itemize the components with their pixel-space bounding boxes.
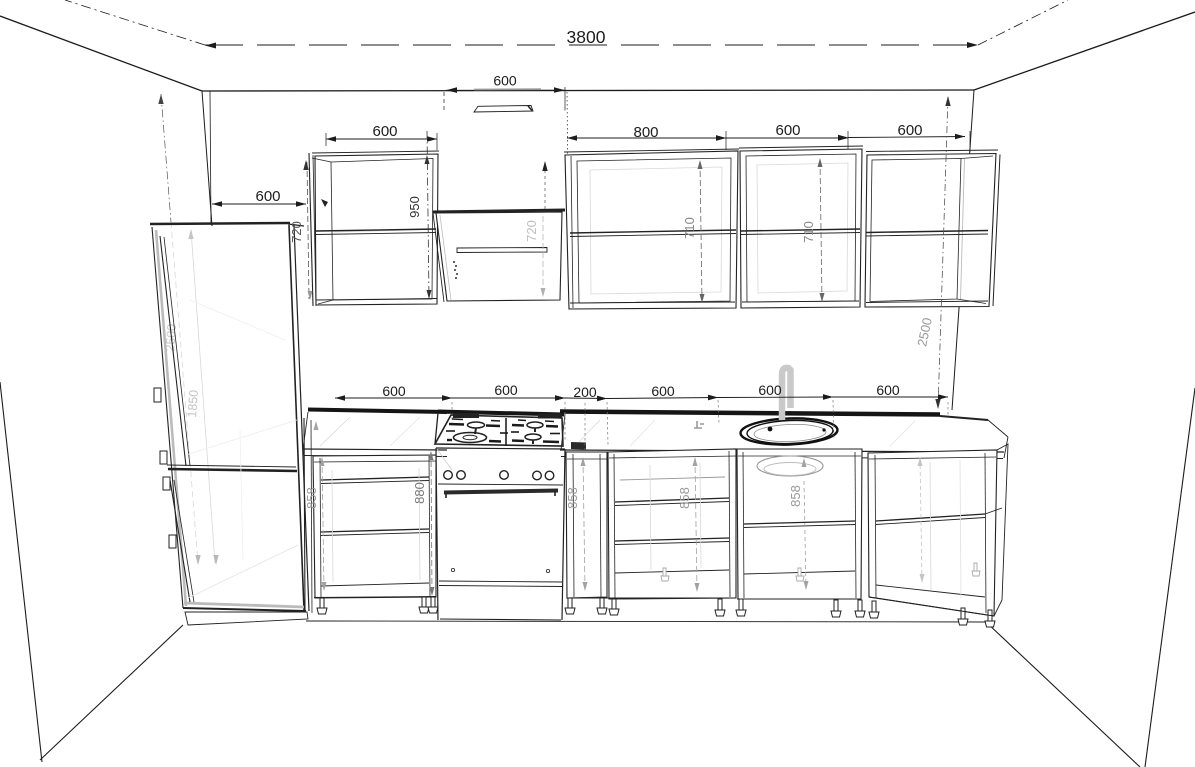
svg-text:600: 600 bbox=[758, 382, 782, 398]
svg-text:880: 880 bbox=[412, 482, 427, 504]
svg-text:858: 858 bbox=[788, 485, 803, 507]
svg-text:710: 710 bbox=[682, 217, 697, 239]
svg-text:600: 600 bbox=[876, 382, 900, 398]
svg-text:600: 600 bbox=[382, 383, 406, 399]
svg-text:600: 600 bbox=[372, 123, 397, 140]
svg-text:950: 950 bbox=[407, 196, 422, 218]
svg-text:710: 710 bbox=[801, 221, 816, 243]
svg-text:600: 600 bbox=[255, 188, 280, 205]
svg-text:858: 858 bbox=[677, 487, 692, 509]
svg-text:2500: 2500 bbox=[914, 316, 935, 347]
svg-text:600: 600 bbox=[493, 73, 517, 89]
svg-text:600: 600 bbox=[651, 383, 675, 399]
svg-text:200: 200 bbox=[573, 384, 597, 400]
svg-text:1850: 1850 bbox=[185, 389, 201, 418]
svg-text:858: 858 bbox=[304, 487, 319, 509]
svg-text:720: 720 bbox=[524, 220, 539, 242]
svg-text:858: 858 bbox=[565, 487, 580, 509]
svg-text:600: 600 bbox=[775, 122, 800, 139]
svg-text:600: 600 bbox=[897, 122, 922, 139]
svg-text:800: 800 bbox=[633, 124, 658, 141]
svg-text:720: 720 bbox=[289, 221, 304, 243]
svg-text:600: 600 bbox=[494, 382, 518, 398]
svg-text:3800: 3800 bbox=[567, 27, 606, 47]
